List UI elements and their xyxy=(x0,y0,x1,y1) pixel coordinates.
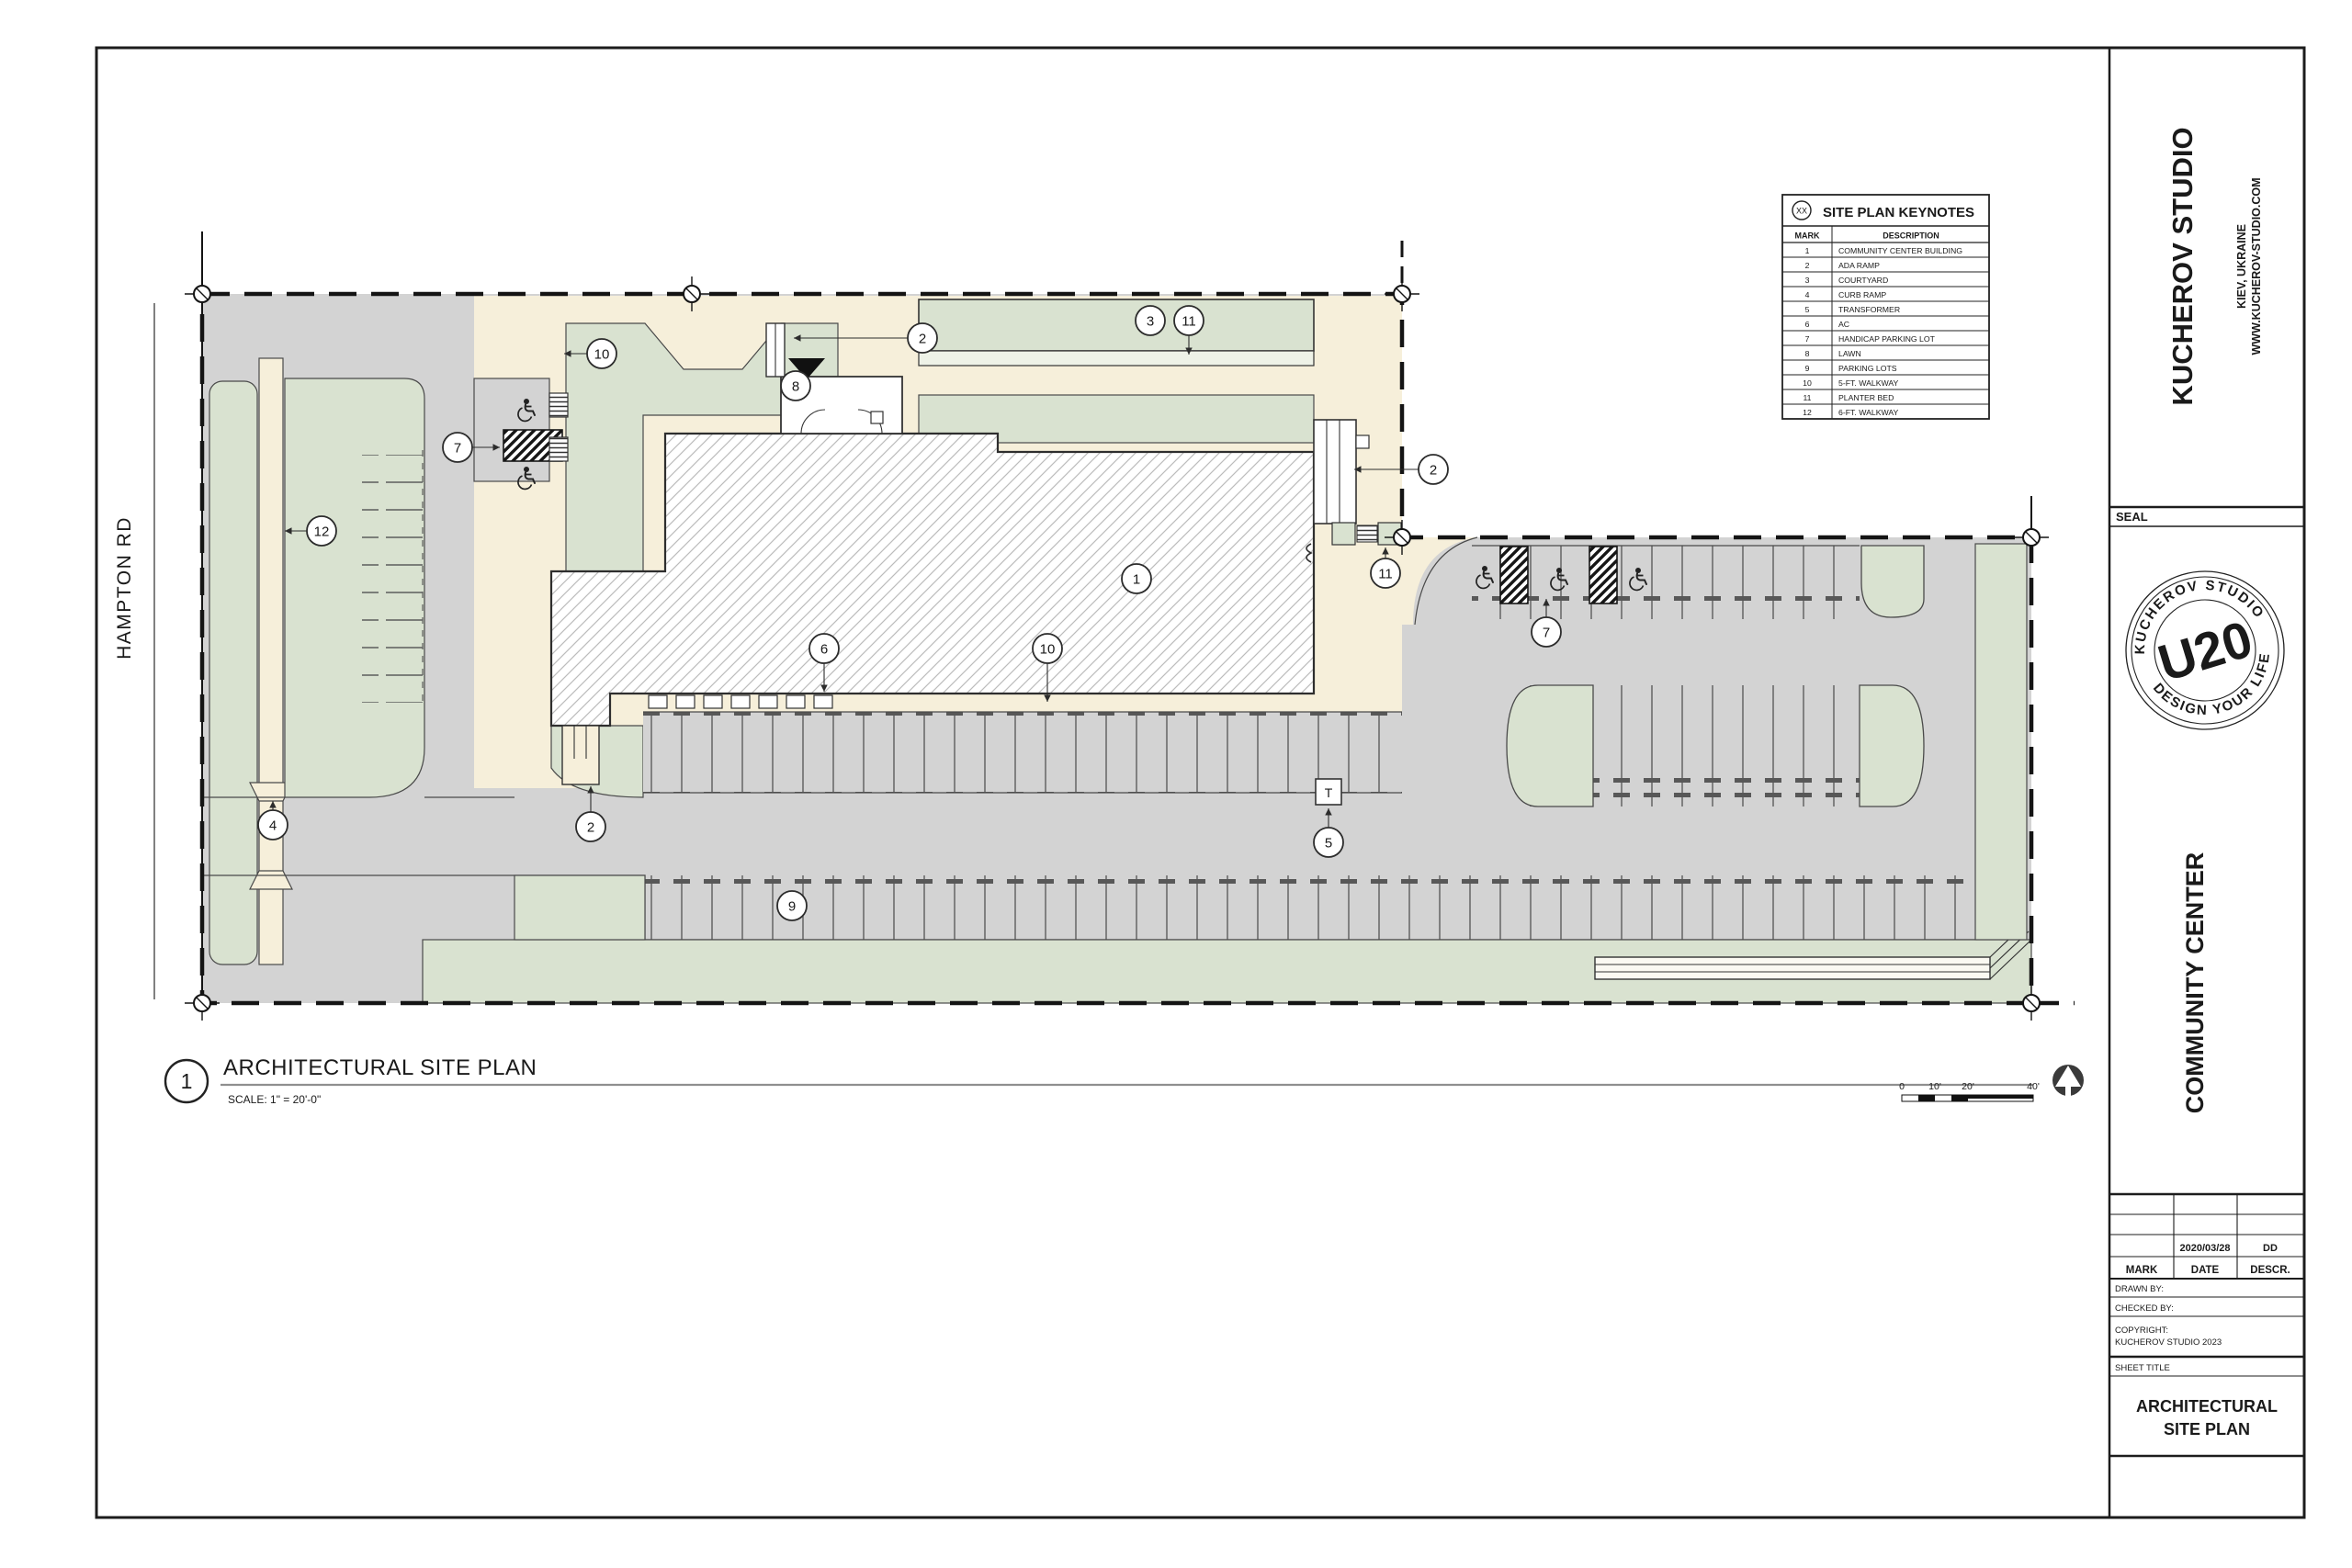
transformer-label: T xyxy=(1325,785,1333,800)
keynotes-col-desc: DESCRIPTION xyxy=(1883,231,1939,241)
keynote-marker: 3 xyxy=(1136,306,1165,335)
keynote-mark: 4 xyxy=(1805,290,1810,299)
handicap-hatch xyxy=(1589,547,1617,604)
copyright-value: KUCHEROV STUDIO 2023 xyxy=(2115,1337,2222,1348)
entry-pier xyxy=(871,412,883,423)
firm-website: WWW.KUCHEROV-STUDIO.COM xyxy=(2250,177,2263,355)
planter-bed xyxy=(919,351,1314,366)
keynote-mark: 6 xyxy=(1805,320,1810,329)
keynote-number: 5 xyxy=(1325,836,1332,852)
revision-descr: DD xyxy=(2263,1243,2278,1254)
sheet: { "sheet": { "drawing_number": "1", "dra… xyxy=(0,0,2352,1568)
handicap-hatch xyxy=(1500,547,1528,604)
green-notch xyxy=(514,875,645,940)
keynotes-col-mark: MARK xyxy=(1795,231,1820,241)
checked-by-label: CHECKED BY: xyxy=(2115,1303,2174,1314)
north-arrow xyxy=(2052,1065,2084,1096)
ramp-pier xyxy=(1356,435,1369,448)
parking-stalls-left xyxy=(362,455,423,703)
keynote-number: 2 xyxy=(587,820,594,836)
keynote-mark: 9 xyxy=(1805,364,1810,373)
keynote-mark: 3 xyxy=(1805,276,1810,285)
keynote-desc: TRANSFORMER xyxy=(1838,305,1900,314)
sheet-title-label: SHEET TITLE xyxy=(2115,1363,2170,1373)
parking-right-top-row xyxy=(1472,546,1860,619)
keynote-number: 7 xyxy=(1543,626,1550,641)
rev-col-mark: MARK xyxy=(2126,1265,2158,1276)
keynote-number: 2 xyxy=(1430,463,1437,479)
scale-tick-label: 40' xyxy=(2027,1081,2040,1092)
parking-row-a xyxy=(643,712,1402,793)
scale-tick-label: 20' xyxy=(1962,1081,1974,1092)
green-edge-strip xyxy=(1975,544,2027,940)
keynotes-table: XX SITE PLAN KEYNOTES MARK DESCRIPTION 1… xyxy=(1782,195,1989,419)
sheet-title-line2: SITE PLAN xyxy=(2164,1420,2250,1438)
keynote-desc: COMMUNITY CENTER BUILDING xyxy=(1838,246,1962,255)
keynote-mark: 5 xyxy=(1805,305,1810,314)
keynote-desc: 6-FT. WALKWAY xyxy=(1838,408,1899,417)
parking-row-b xyxy=(645,875,1975,940)
ada-ramp-bottom xyxy=(562,726,599,784)
grate xyxy=(549,393,568,417)
title-block: KUCHEROV STUDIO KIEV, UKRAINE WWW.KUCHER… xyxy=(2107,127,2304,1456)
keynote-mark: 7 xyxy=(1805,334,1810,344)
site-plan-sheet: T HAMPTON RD 108 xyxy=(0,0,2352,1568)
keynote-number: 12 xyxy=(314,525,330,540)
road-name: HAMPTON RD xyxy=(114,516,135,660)
planter-box xyxy=(1332,523,1355,545)
firm-city: KIEV, UKRAINE xyxy=(2235,224,2248,309)
green-island xyxy=(1861,546,1924,617)
green-island xyxy=(1860,685,1924,807)
keynote-number: 4 xyxy=(269,818,277,834)
keynote-desc: PLANTER BED xyxy=(1838,393,1894,402)
keynote-marker: 9 xyxy=(777,891,807,920)
keynote-desc: LAWN xyxy=(1838,349,1861,358)
rev-col-date: DATE xyxy=(2191,1265,2220,1276)
keynote-mark: 8 xyxy=(1805,349,1810,358)
keynote-number: 8 xyxy=(792,379,799,395)
keynote-desc: PARKING LOTS xyxy=(1838,364,1897,373)
keynote-mark: 2 xyxy=(1805,261,1810,270)
keynote-desc: HANDICAP PARKING LOT xyxy=(1838,334,1936,344)
median-green xyxy=(209,381,257,964)
grate xyxy=(549,437,568,461)
drawing-title: ARCHITECTURAL SITE PLAN xyxy=(223,1055,537,1080)
site-plan-drawing: T HAMPTON RD 108 xyxy=(114,231,2075,1021)
keynotes-title: SITE PLAN KEYNOTES xyxy=(1823,205,1974,220)
drawing-scale: SCALE: 1" = 20'-0" xyxy=(228,1093,321,1106)
keynote-number: 1 xyxy=(1133,572,1140,588)
copyright-label: COPYRIGHT: xyxy=(2115,1325,2168,1336)
drawn-by-label: DRAWN BY: xyxy=(2115,1284,2164,1294)
keynote-number: 9 xyxy=(788,899,796,915)
drawing-number: 1 xyxy=(181,1069,193,1093)
drawing-title-block: 1 ARCHITECTURAL SITE PLAN SCALE: 1" = 20… xyxy=(165,1055,2033,1106)
keynote-mark: 10 xyxy=(1803,378,1812,388)
firm-name: KUCHEROV STUDIO xyxy=(2166,127,2199,405)
keynote-mark: 12 xyxy=(1803,408,1812,417)
keynote-mark: 1 xyxy=(1805,246,1810,255)
keynote-number: 10 xyxy=(1040,642,1056,658)
keynote-desc: CURB RAMP xyxy=(1838,290,1886,299)
keynote-desc: ADA RAMP xyxy=(1838,261,1880,270)
scale-tick-label: 10' xyxy=(1928,1081,1941,1092)
grate xyxy=(1357,525,1377,542)
keynote-desc: COURTYARD xyxy=(1838,276,1888,285)
keynote-desc: AC xyxy=(1838,320,1849,329)
keynote-marker: 1 xyxy=(1122,564,1151,593)
revision-date: 2020/03/28 xyxy=(2179,1243,2230,1254)
sheet-title-line1: ARCHITECTURAL xyxy=(2136,1397,2278,1416)
keynote-number: 7 xyxy=(454,441,461,457)
keynote-number: 3 xyxy=(1147,314,1154,330)
keynote-number: 11 xyxy=(1182,314,1196,330)
ada-ramp-right xyxy=(1314,420,1356,524)
bottom-walkway xyxy=(1595,957,1990,979)
rev-col-descr: DESCR. xyxy=(2250,1265,2290,1276)
keynote-symbol: XX xyxy=(1796,207,1807,216)
keynote-number: 11 xyxy=(1378,567,1393,582)
keynote-number: 6 xyxy=(820,642,828,658)
keynote-marker: 8 xyxy=(781,371,810,400)
keynote-desc: 5-FT. WALKWAY xyxy=(1838,378,1899,388)
keynote-number: 2 xyxy=(919,332,926,347)
scale-tick-label: 0 xyxy=(1899,1081,1905,1092)
community-center-building xyxy=(551,434,1314,726)
courtyard xyxy=(919,299,1314,351)
keynote-mark: 11 xyxy=(1803,393,1811,402)
ac-units xyxy=(649,695,832,708)
keynote-number: 10 xyxy=(594,347,610,363)
project-name: COMMUNITY CENTER xyxy=(2181,852,2209,1114)
seal-label: SEAL xyxy=(2116,510,2148,524)
seal: KUCHEROV STUDIO DESIGN YOUR LIFE U20 xyxy=(2107,552,2304,750)
green-island xyxy=(1507,685,1593,807)
